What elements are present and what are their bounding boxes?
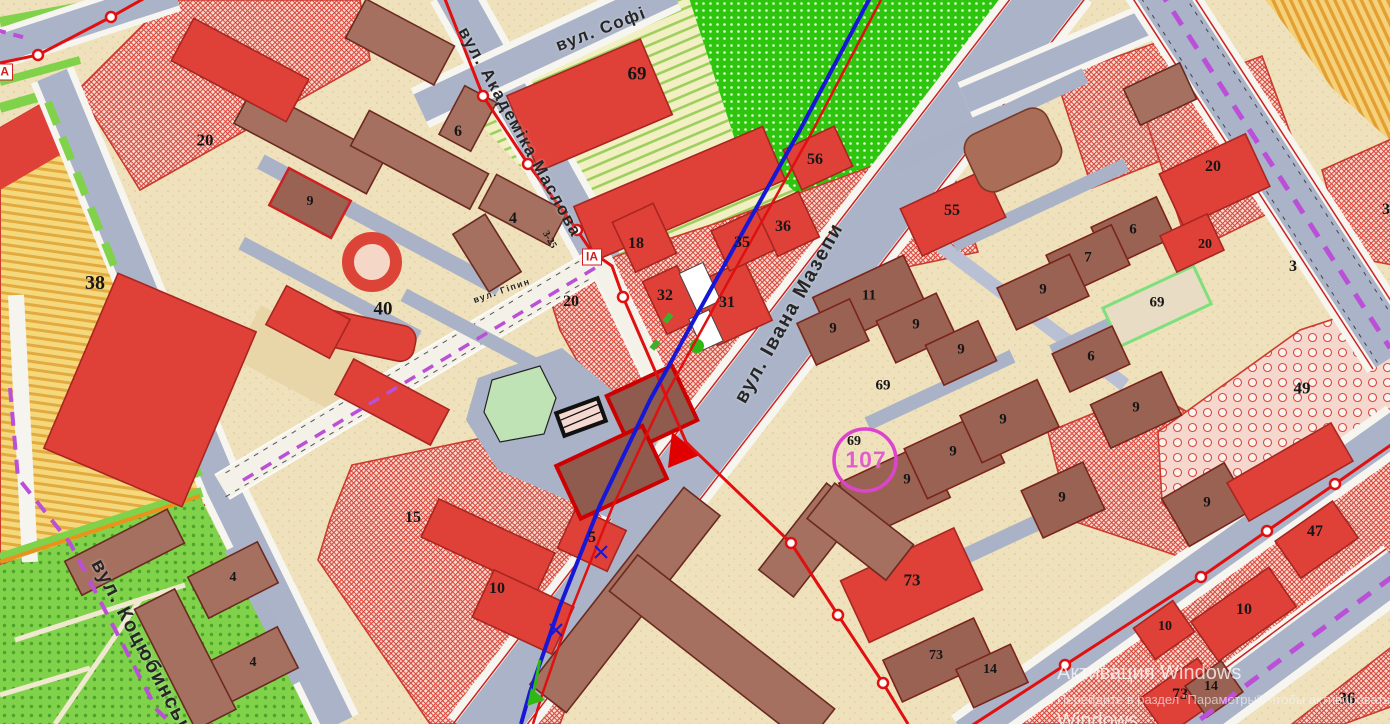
map-canvas[interactable]: вул. Академіка Масловавул. Софівул. Іван… [0, 0, 1390, 724]
map-base-layer [0, 0, 1390, 724]
